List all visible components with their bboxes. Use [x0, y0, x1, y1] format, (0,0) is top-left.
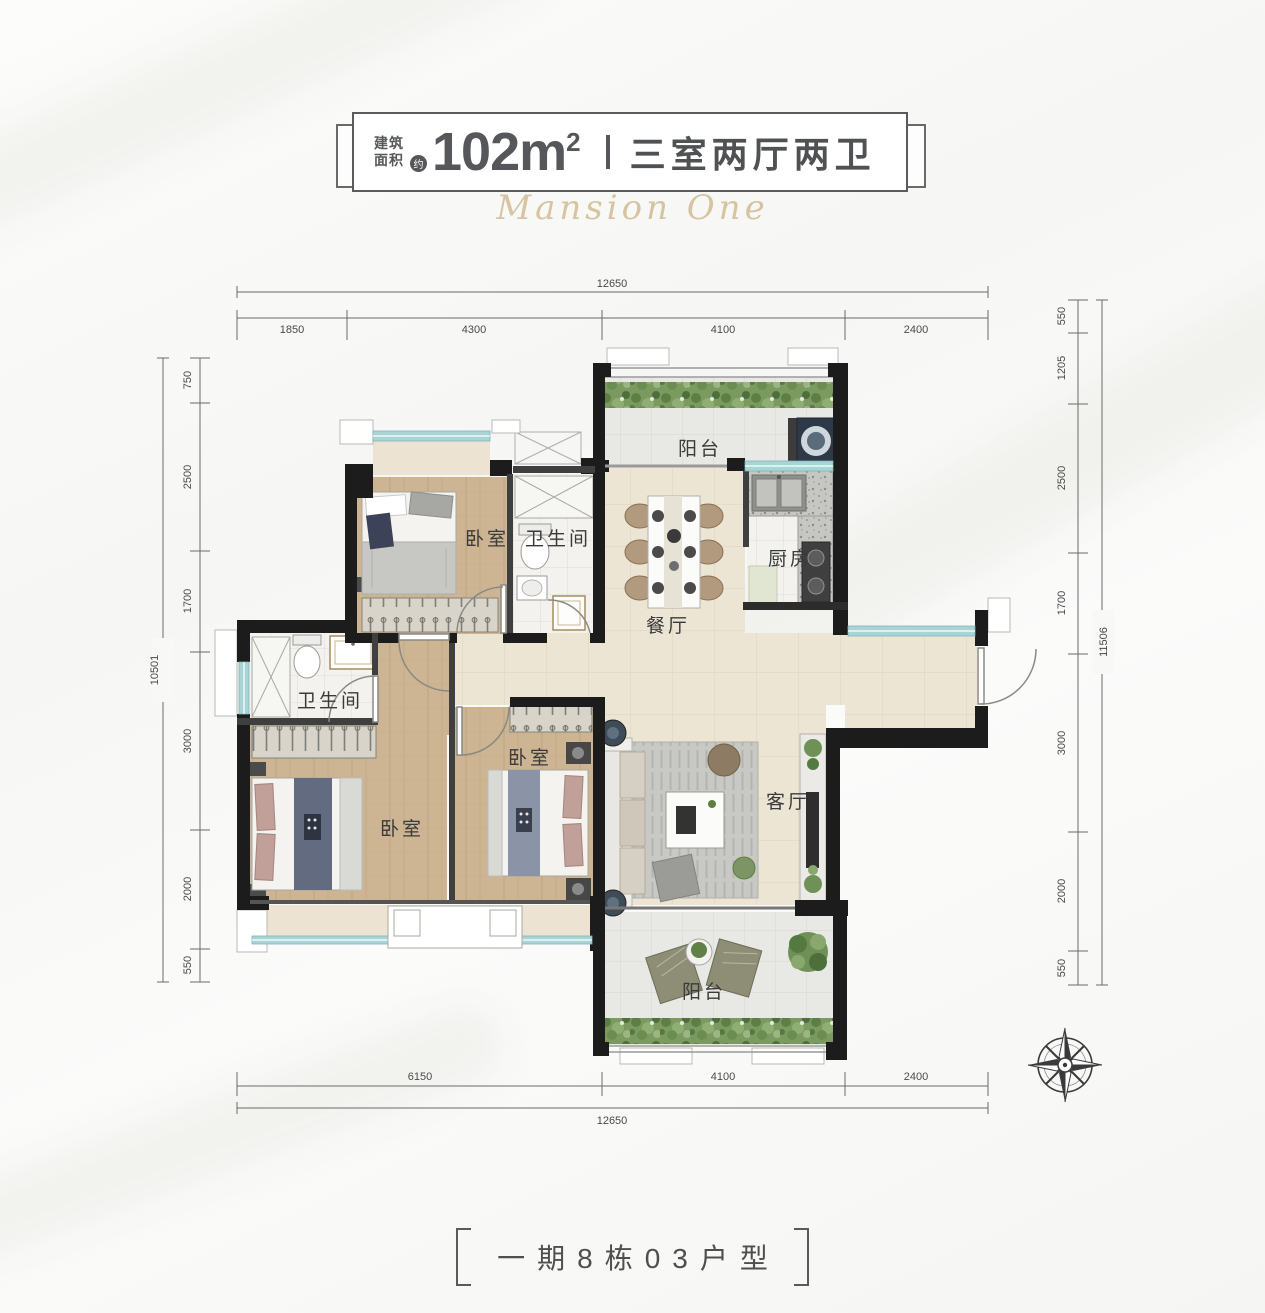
floor-master-corridor: [378, 640, 449, 735]
brand-watermark: Mansion One: [0, 188, 1265, 228]
dim-top-seg-3: 2400: [904, 324, 928, 336]
bracket-right: [794, 1228, 809, 1286]
dim-left-seg-0: 750: [182, 371, 194, 389]
plant-icon: [733, 857, 755, 879]
wardrobe-icon: [252, 726, 376, 758]
window-bath-left: [239, 662, 249, 714]
room-label-bath-top: 卫生间: [525, 528, 591, 550]
dim-bottom-seg-1: 4100: [711, 1071, 735, 1083]
unit-label: 一期8栋03户型: [0, 1228, 1265, 1286]
bracket-left: [456, 1228, 471, 1286]
toilet-icon: [293, 635, 321, 645]
room-label-bedroom-top: 卧室: [465, 528, 509, 550]
dim-bottom-seg-0: 6150: [408, 1071, 432, 1083]
title-divider: [606, 135, 610, 169]
dim-left-seg-5: 550: [182, 956, 194, 974]
ottoman-icon: [708, 744, 740, 776]
area-superscript: 2: [566, 127, 579, 157]
window-kitchen: [745, 461, 833, 471]
dim-right-seg-6: 550: [1056, 959, 1068, 977]
dim-bottom-seg-2: 2400: [904, 1071, 928, 1083]
dim-top-total: 12650: [597, 278, 628, 290]
bed-icon-master: [250, 726, 376, 898]
room-label-kitchen: 厨房: [768, 548, 812, 570]
planter-strip-top: [603, 382, 833, 408]
dining-table-icon: [625, 496, 723, 608]
area-prefix-line1: 建筑: [374, 135, 404, 153]
floor-hallway: [455, 633, 845, 705]
dim-right-seg-1: 1205: [1056, 356, 1068, 380]
room-label-dining: 餐厅: [646, 615, 690, 637]
layout-text: 三室两厅两卫: [630, 126, 876, 178]
dim-top-seg-2: 4100: [711, 324, 735, 336]
dim-right-total: 11506: [1098, 627, 1110, 657]
window-bedroom-top: [373, 431, 490, 441]
approx-badge: 约: [410, 155, 427, 172]
room-label-bedroom-mid: 卧室: [508, 747, 552, 769]
room-label-bath-left: 卫生间: [297, 690, 363, 712]
light-well: [515, 432, 581, 464]
dim-right-seg-4: 3000: [1056, 731, 1068, 755]
dim-bottom-total: 12650: [597, 1115, 628, 1127]
bay-window-center: [388, 906, 522, 948]
dim-left-total: 10501: [149, 655, 161, 686]
dim-left-seg-3: 3000: [182, 729, 194, 753]
dim-left-seg-4: 2000: [182, 877, 194, 901]
room-label-balcony-bottom: 阳台: [682, 981, 726, 1003]
room-label-balcony-top: 阳台: [678, 438, 722, 460]
dim-right-seg-3: 1700: [1056, 591, 1068, 615]
area-prefix: 建筑 面积: [374, 135, 404, 170]
dim-right-seg-2: 2500: [1056, 466, 1068, 490]
compass-icon: [1028, 1028, 1102, 1102]
title-banner: 建筑 面积 约 102m2 三室两厅两卫: [352, 112, 908, 192]
window-entry-corridor: [848, 626, 975, 636]
dim-top-seg-1: 4300: [462, 324, 486, 336]
dim-left-seg-2: 1700: [182, 589, 194, 613]
washing-machine-icon: [788, 418, 835, 464]
floorplan-page: 建筑 面积 约 102m2 三室两厅两卫 Mansion One: [0, 0, 1265, 1313]
dim-right-seg-5: 2000: [1056, 879, 1068, 903]
unit-text: 一期8栋03户型: [471, 1237, 794, 1277]
dim-right-seg-0: 550: [1056, 307, 1068, 325]
dim-top-seg-0: 1850: [280, 324, 304, 336]
floor-entry: [845, 635, 977, 728]
wardrobe-icon: [362, 598, 498, 632]
planter-strip-bottom: [605, 1018, 833, 1044]
door-entry: [978, 648, 1036, 704]
area-value: 102m2: [432, 125, 580, 179]
room-label-bedroom-master: 卧室: [380, 818, 424, 840]
sill-bedroom-top: [373, 441, 490, 475]
pouf-icon: [652, 854, 699, 901]
dim-left-seg-1: 2500: [182, 465, 194, 489]
room-label-living: 客厅: [766, 791, 810, 813]
area-prefix-line2: 面积: [374, 152, 404, 170]
area-number: 102m: [432, 122, 566, 182]
title-side-tab-right: [906, 124, 926, 188]
wardrobe-icon: [510, 706, 592, 732]
